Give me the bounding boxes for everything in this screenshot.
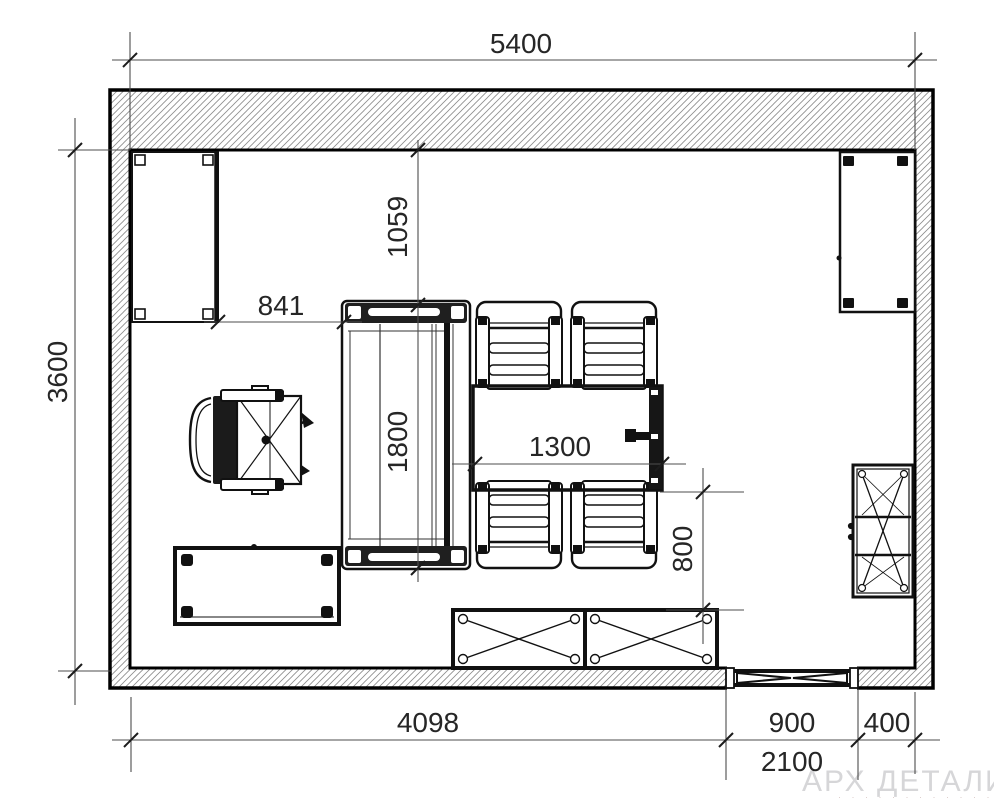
dim-bottom-row: 4098 900 400 2100 — [112, 690, 940, 780]
dining-chair-3 — [476, 481, 562, 568]
chair-back-pad — [213, 396, 237, 484]
dim-wardrobe-to-sofa: 841 — [204, 290, 362, 329]
dim-wall-to-sofa-label: 1059 — [382, 196, 413, 258]
floor-plan-drawing: АРХ ДЕТАЛИ · · · · · · · · · · · · 5400 … — [0, 0, 994, 800]
dim-table-length-label: 1300 — [529, 431, 591, 462]
dim-wardrobe-to-sofa-label: 841 — [258, 290, 305, 321]
dining-chair-2 — [571, 302, 657, 389]
dim-room-depth-label: 3600 — [42, 341, 73, 403]
dim-sofa-length-label: 1800 — [382, 411, 413, 473]
chair-armrest-top — [221, 390, 283, 401]
dim-door-width-label: 900 — [769, 707, 816, 738]
dining-chair-4 — [571, 481, 657, 568]
shelf-cabinet-right — [848, 465, 913, 597]
door-jamb-left — [726, 668, 734, 688]
door-jamb-right — [850, 668, 858, 688]
dining-chair-1 — [476, 302, 562, 389]
sofa-armrest-bottom — [345, 546, 467, 566]
floor-plan-canvas: АРХ ДЕТАЛИ · · · · · · · · · · · · 5400 … — [0, 0, 994, 800]
dim-door-height-label: 2100 — [761, 746, 823, 777]
dim-room-width-label: 5400 — [490, 28, 552, 59]
sofa-armrest-top — [345, 303, 467, 323]
dim-door-to-wall-label: 400 — [864, 707, 911, 738]
wardrobe-top-left — [132, 152, 218, 322]
chair-backrest — [190, 398, 211, 482]
table-bracket — [625, 429, 636, 442]
sideboard — [453, 610, 717, 668]
watermark: АРХ ДЕТАЛИ · · · · · · · · · · · · — [802, 765, 994, 800]
watermark-subtitle: · · · · · · · · · · · · — [838, 792, 993, 800]
desk-chair — [190, 386, 314, 494]
furniture — [132, 152, 915, 668]
cabinet-top-right — [837, 152, 916, 312]
chair-armrest-bottom — [221, 479, 283, 490]
coffee-table — [175, 544, 339, 624]
dim-table-to-sideboard-label: 800 — [667, 526, 698, 573]
dim-wall-to-door-label: 4098 — [397, 707, 459, 738]
